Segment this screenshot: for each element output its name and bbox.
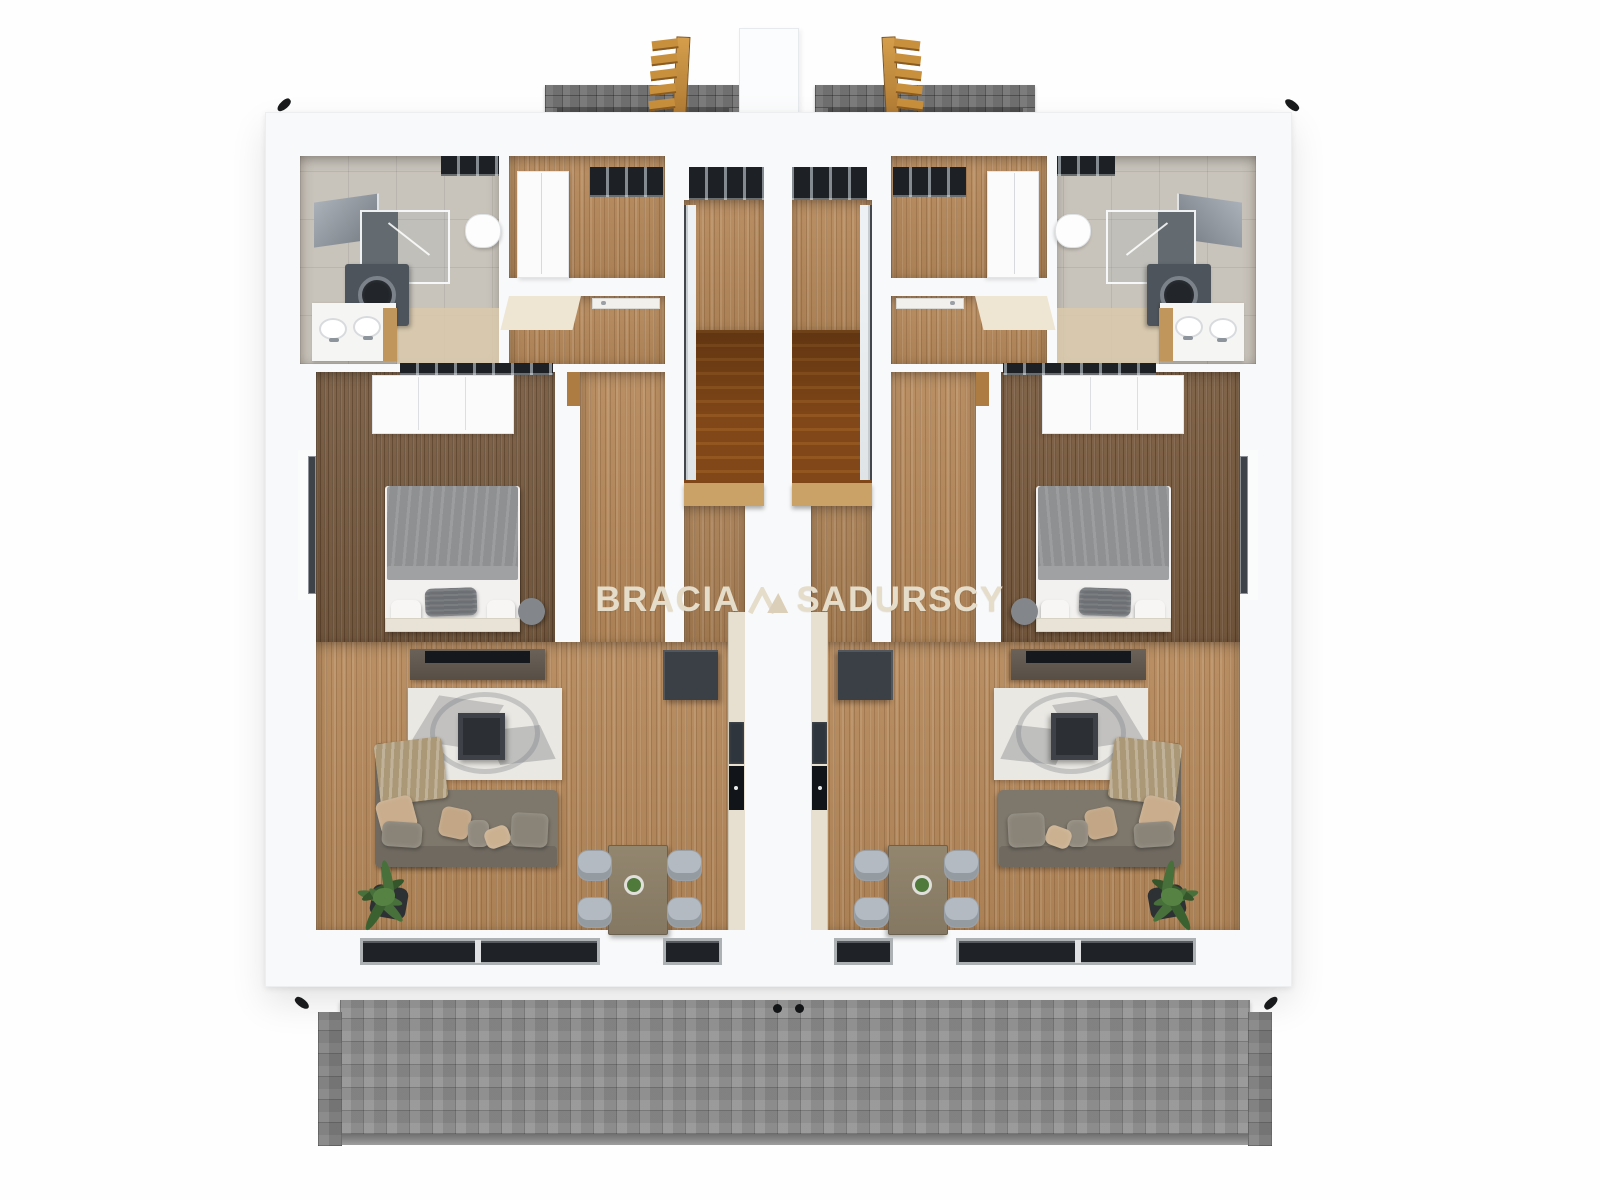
- faucet: [329, 338, 339, 342]
- bedroom-side-window-glass: [1240, 456, 1248, 594]
- hall-window-band: [590, 167, 663, 197]
- stair-railing-glass: [860, 205, 870, 480]
- sink-basin: [353, 316, 381, 338]
- hall-wardrobe-seam: [1014, 173, 1015, 274]
- table-plant: [915, 878, 929, 892]
- kitchen-cooktop: [729, 722, 744, 764]
- kitchen-oven-dot: [818, 786, 822, 790]
- sofa-throw-blanket: [1107, 736, 1182, 806]
- sink-counter-wood-edge: [383, 308, 397, 361]
- door-handle: [601, 301, 606, 305]
- bed-headboard: [1036, 618, 1171, 632]
- dining-chair: [854, 897, 889, 928]
- faucet: [1183, 336, 1193, 340]
- bathroom-beige-tiles: [1057, 308, 1159, 364]
- bedroom-wardrobe-seam: [465, 377, 466, 430]
- bed-duvet-gray: [387, 486, 518, 578]
- bedroom-window-band: [1003, 363, 1156, 375]
- toilet: [1055, 214, 1091, 248]
- bathroom-beige-tiles: [397, 308, 499, 364]
- stair-railing-glass: [686, 205, 696, 480]
- bedroom-pouf: [1011, 598, 1038, 625]
- faucet: [363, 336, 373, 340]
- sofa-throw-blanket: [373, 736, 448, 806]
- sofa-pillow-gray: [1007, 812, 1046, 848]
- sofa-backrest: [377, 846, 557, 867]
- bed-duvet-fold: [387, 566, 518, 580]
- watermark: BRACIA SADURSCY: [595, 580, 1005, 620]
- bedroom-wardrobe-seam: [1090, 377, 1091, 430]
- sofa-backrest: [999, 846, 1179, 867]
- bed-headboard: [385, 618, 520, 632]
- stair-upper-landing: [684, 200, 764, 330]
- faucet: [1217, 338, 1227, 342]
- hall-bottom-wall-face: [975, 296, 1055, 330]
- hall-wardrobe: [517, 171, 569, 278]
- dining-chair: [667, 850, 702, 881]
- sink-counter-wood-edge: [1159, 308, 1173, 361]
- stair-window-band: [792, 167, 867, 200]
- bedroom-door-frame: [567, 372, 580, 406]
- terrace-window-mullion: [475, 940, 481, 963]
- bed-duvet-fold: [1038, 566, 1169, 580]
- bedroom-wardrobe-seam: [1137, 377, 1138, 430]
- hall-window-band: [893, 167, 966, 197]
- bedroom-wardrobe: [1042, 375, 1184, 434]
- bedroom-wardrobe-seam: [418, 377, 419, 430]
- bathroom-skylight: [441, 156, 499, 176]
- coffee-table: [1051, 713, 1098, 760]
- bed-duvet-gray: [1038, 486, 1169, 578]
- floor-plan-render: BRACIA SADURSCY: [0, 0, 1600, 1200]
- stair-lower-landing: [684, 483, 764, 506]
- terrace-window-small: [663, 938, 722, 965]
- coffee-table: [458, 713, 505, 760]
- watermark-text-left: BRACIA: [595, 580, 740, 620]
- kitchen-oven-dot: [734, 786, 738, 790]
- sink-basin: [1175, 316, 1203, 338]
- sofa-pillow-beige: [1083, 805, 1119, 841]
- dining-chair: [944, 897, 979, 928]
- hall-wardrobe: [987, 171, 1039, 278]
- bed-pillow-dark: [425, 587, 478, 617]
- dining-chair: [667, 897, 702, 928]
- bedroom-door-frame: [976, 372, 989, 406]
- bedroom-pouf: [518, 598, 545, 625]
- sofa-pillow-gray: [1133, 821, 1175, 849]
- stair-lower-landing: [792, 483, 872, 506]
- terrace-window-small: [834, 938, 893, 965]
- door-handle: [950, 301, 955, 305]
- sofa-pillow-gray: [381, 821, 423, 849]
- bathroom-skylight: [1057, 156, 1115, 176]
- dining-chair: [577, 850, 612, 881]
- hall-bottom-wall-face: [501, 296, 581, 330]
- bedroom-side-window-glass: [308, 456, 316, 594]
- fridge-cabinet: [838, 650, 893, 700]
- bedroom-wardrobe: [372, 375, 514, 434]
- hall-wardrobe-seam: [541, 173, 542, 274]
- sink-basin: [319, 318, 347, 340]
- stair-flight: [684, 330, 764, 483]
- tv-screen: [1026, 651, 1131, 663]
- plant-center: [1161, 888, 1183, 906]
- tv-screen: [425, 651, 530, 663]
- bed-pillow-dark: [1079, 587, 1132, 617]
- sink-basin: [1209, 318, 1237, 340]
- sofa-pillow-gray: [510, 812, 549, 848]
- kitchen-cooktop: [812, 722, 827, 764]
- dining-chair: [854, 850, 889, 881]
- stair-railing-rail: [684, 205, 686, 480]
- fridge-cabinet: [663, 650, 718, 700]
- dining-chair: [577, 897, 612, 928]
- toilet: [465, 214, 501, 248]
- bedroom-window-band: [400, 363, 553, 375]
- stair-window-band: [689, 167, 764, 200]
- stair-railing-rail: [870, 205, 872, 480]
- table-plant: [627, 878, 641, 892]
- dining-chair: [944, 850, 979, 881]
- watermark-text-right: SADURSCY: [796, 580, 1004, 620]
- mountain-logo-icon: [747, 587, 789, 614]
- terrace-window-mullion: [1075, 940, 1081, 963]
